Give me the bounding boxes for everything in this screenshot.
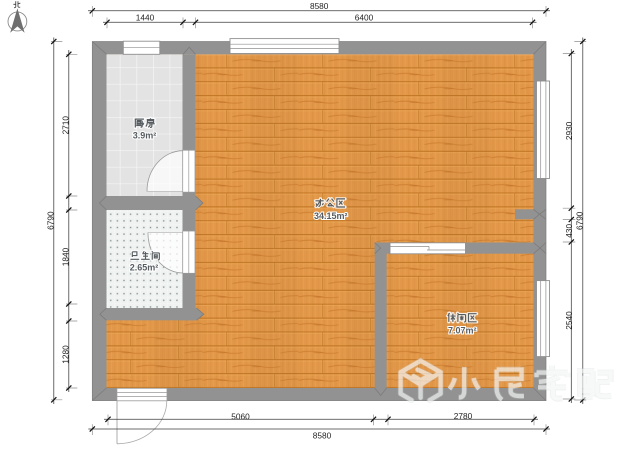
svg-text:3.9m²: 3.9m²: [133, 131, 157, 141]
svg-text:1440: 1440: [136, 13, 155, 23]
svg-text:6790: 6790: [45, 211, 55, 230]
svg-text:8580: 8580: [310, 1, 329, 11]
svg-text:6400: 6400: [355, 13, 374, 23]
svg-text:8580: 8580: [313, 431, 332, 441]
svg-text:5060: 5060: [231, 411, 250, 421]
svg-text:2930: 2930: [564, 121, 574, 140]
svg-text:2710: 2710: [61, 116, 71, 135]
svg-text:430: 430: [564, 223, 574, 237]
svg-text:34.15m²: 34.15m²: [314, 211, 348, 221]
svg-text:1840: 1840: [61, 247, 71, 266]
svg-text:2.65m²: 2.65m²: [130, 263, 159, 273]
svg-text:2780: 2780: [454, 411, 473, 421]
svg-text:7.07m²: 7.07m²: [448, 326, 477, 336]
svg-text:1280: 1280: [61, 345, 71, 364]
svg-text:2540: 2540: [564, 311, 574, 330]
svg-text:6790: 6790: [574, 211, 584, 230]
